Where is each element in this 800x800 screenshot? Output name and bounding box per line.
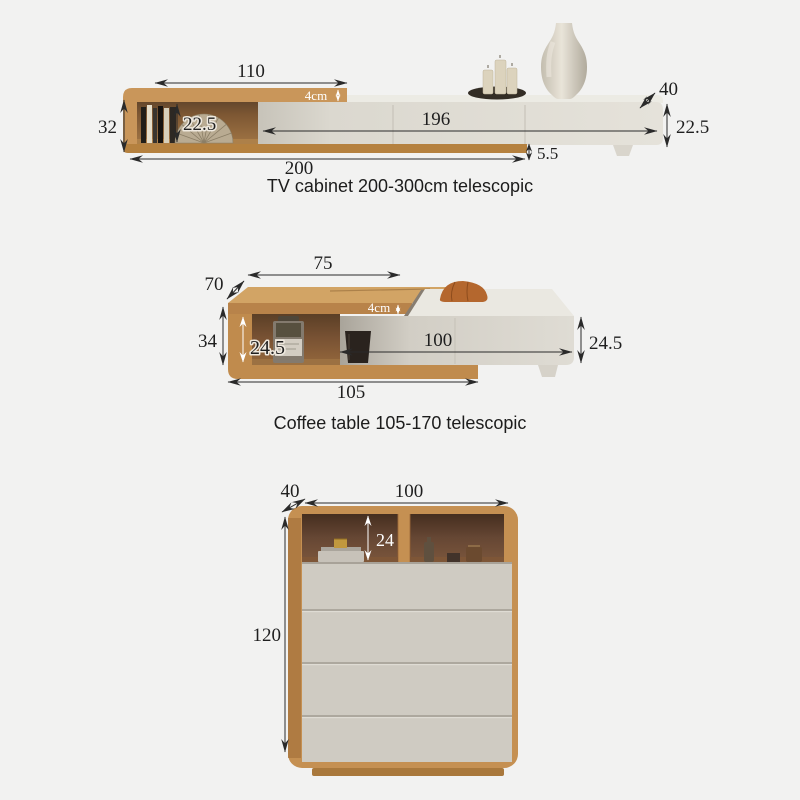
- coffee-unit-foot: [538, 365, 558, 377]
- chest-plinth: [312, 768, 504, 776]
- chest-divider-edge: [410, 514, 412, 562]
- tv-base-gap-label: 5.5: [537, 144, 558, 163]
- tv-unit-length-label: 196: [422, 109, 451, 130]
- chest-figure: 40 100 24 120: [253, 481, 519, 776]
- coffee-unit-length-label: 100: [424, 330, 453, 351]
- chest-drawer-stack: [302, 562, 512, 762]
- coffee-left-height-label: 34: [198, 331, 218, 352]
- tv-shelf-height-label: 22.5: [183, 114, 216, 135]
- candle-tray-decor: [468, 55, 526, 100]
- coffee-top-decor: [440, 281, 488, 302]
- coffee-depth-label: 70: [205, 274, 224, 295]
- tv-cabinet-illustration: [123, 23, 663, 156]
- tv-cabinet-figure: 110 32 22.5 4cm 196 40 22.5 5.5 200 TV c…: [98, 23, 709, 196]
- tv-left-height-label: 32: [98, 117, 117, 138]
- chest-illustration: [288, 506, 518, 776]
- coffee-unit-drawer-front: [340, 316, 574, 365]
- tv-unit-height-label: 22.5: [676, 117, 709, 138]
- tv-wood-base-shelf: [123, 144, 527, 153]
- coffee-shelf-height-label: 24.5: [250, 337, 285, 359]
- coffee-top-width-label: 75: [314, 253, 333, 274]
- product-dimension-sheet: 110 32 22.5 4cm 196 40 22.5 5.5 200 TV c…: [0, 0, 800, 800]
- coffee-panel-thickness-label: 4cm: [368, 300, 390, 315]
- tv-unit-drawer-front: [258, 102, 663, 145]
- chest-width-label: 100: [395, 481, 424, 502]
- tv-cabinet-caption: TV cabinet 200-300cm telescopic: [267, 176, 533, 196]
- dimension-diagram-canvas: 110 32 22.5 4cm 196 40 22.5 5.5 200 TV c…: [0, 0, 800, 800]
- coffee-unit-height-label: 24.5: [589, 333, 622, 354]
- tv-top-width-label: 110: [237, 61, 265, 82]
- tv-unit-foot: [613, 145, 633, 156]
- coffee-table-figure: 75 70 34 24.5 4cm 100 24.5 105 Coffee ta…: [198, 253, 622, 433]
- tv-depth-label: 40: [659, 79, 678, 100]
- chest-divider-edge: [397, 514, 399, 562]
- chest-depth-label: 40: [281, 481, 300, 502]
- chest-shelf-height-label: 24: [376, 530, 394, 550]
- coffee-base-length-label: 105: [337, 382, 366, 403]
- tv-panel-thickness-label: 4cm: [305, 88, 327, 103]
- coffee-unit-top-surface: [408, 289, 574, 316]
- chest-side-panel: [288, 518, 301, 758]
- coffee-table-caption: Coffee table 105-170 telescopic: [274, 413, 527, 433]
- chest-height-label: 120: [253, 625, 282, 646]
- coffee-table-illustration: [228, 281, 574, 379]
- vase-decor: [541, 23, 587, 99]
